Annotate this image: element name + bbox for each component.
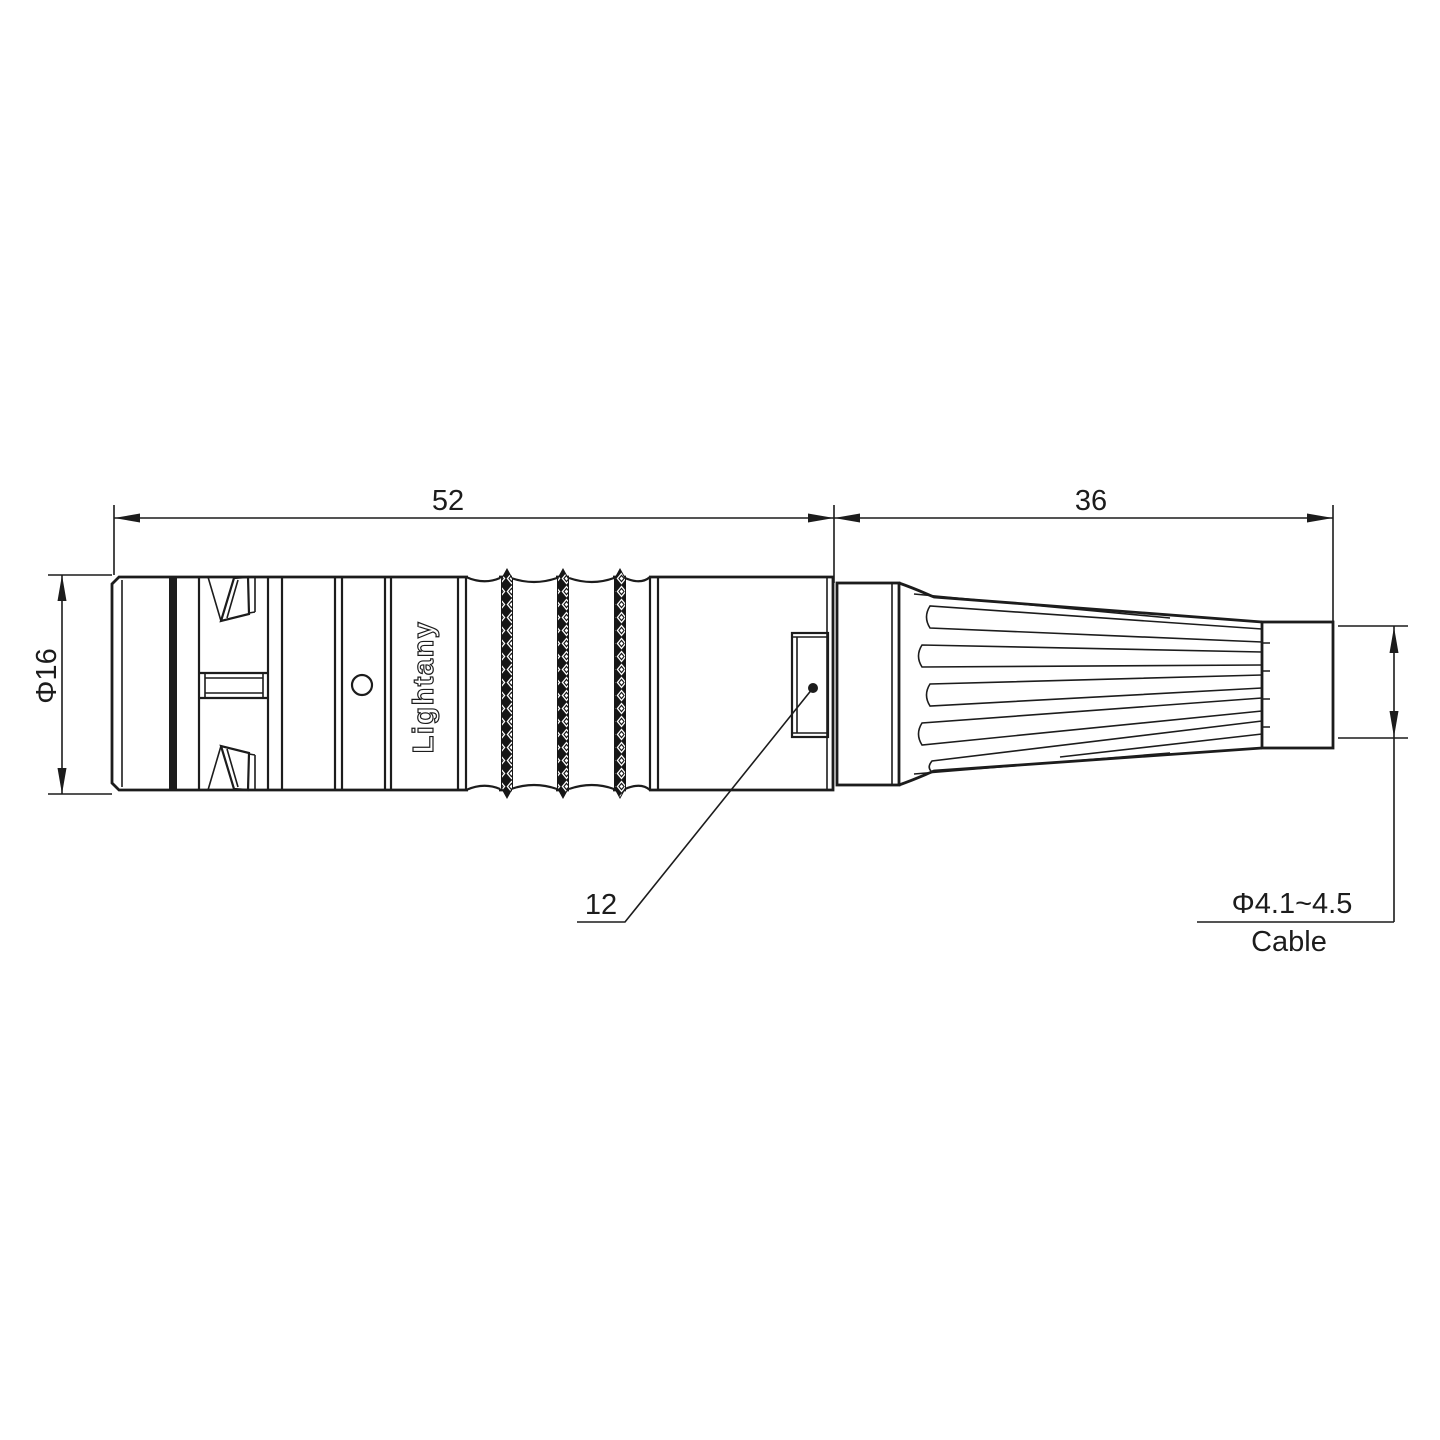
connector-technical-drawing: Lightany <box>0 0 1440 1440</box>
leader12-dot <box>808 683 818 693</box>
phi16-arrow-bottom <box>58 768 67 794</box>
connector-body: Lightany <box>112 569 833 798</box>
technical-drawing-page: Lightany <box>0 0 1440 1440</box>
phi16-arrow-top <box>58 575 67 601</box>
cable-bushing <box>1262 622 1333 748</box>
cable-diameter-value: Φ4.1~4.5 <box>1232 888 1353 920</box>
dim36-value: 36 <box>1075 485 1107 517</box>
body-outline <box>112 577 833 790</box>
dimension-36: 36 <box>834 485 1333 622</box>
collar <box>837 583 899 785</box>
dim36-arrow-left <box>834 514 860 523</box>
brand-engraving: Lightany <box>408 621 440 754</box>
cable-extension-lines <box>1338 626 1408 738</box>
leader12-value: 12 <box>585 889 617 921</box>
knurl-band <box>502 569 513 798</box>
cable-arrow-bottom <box>1390 711 1399 737</box>
boot-ribs <box>914 594 1262 774</box>
dim52-extension-lines <box>114 505 834 583</box>
cable-caption: Cable <box>1251 926 1327 958</box>
knurl-band <box>558 569 569 798</box>
cable-arrow-top <box>1390 627 1399 653</box>
dimension-phi16: Φ16 <box>31 575 112 794</box>
dimension-52: 52 <box>114 485 834 583</box>
groove-ring <box>169 577 177 790</box>
dim52-value: 52 <box>432 485 464 517</box>
dim36-arrow-right <box>1307 514 1333 523</box>
dim52-arrow-right <box>808 514 834 523</box>
knurl-band <box>615 569 626 798</box>
dim52-arrow-left <box>114 514 140 523</box>
strain-relief <box>837 583 1333 785</box>
phi16-value: Φ16 <box>31 648 63 703</box>
boot-bottom-outline <box>899 748 1262 785</box>
